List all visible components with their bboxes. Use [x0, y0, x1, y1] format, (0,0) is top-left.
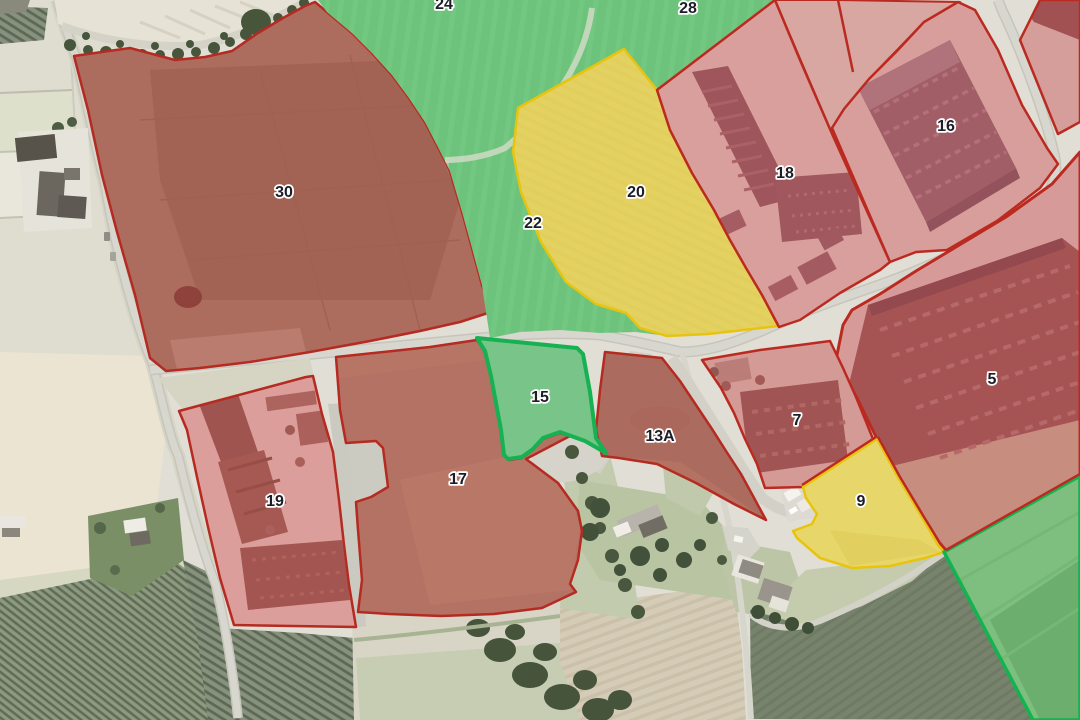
svg-text:18: 18 [776, 165, 794, 182]
svg-text:22: 22 [524, 215, 542, 232]
svg-text:30: 30 [275, 184, 293, 201]
svg-text:17: 17 [449, 471, 467, 488]
svg-text:5: 5 [988, 371, 997, 388]
svg-text:13A: 13A [645, 428, 675, 445]
svg-text:28: 28 [679, 0, 697, 17]
svg-text:19: 19 [266, 493, 284, 510]
svg-text:9: 9 [857, 493, 866, 510]
svg-text:7: 7 [793, 412, 802, 429]
svg-text:15: 15 [531, 389, 549, 406]
svg-text:16: 16 [937, 118, 955, 135]
svg-text:20: 20 [627, 184, 645, 201]
svg-text:24: 24 [435, 0, 453, 13]
